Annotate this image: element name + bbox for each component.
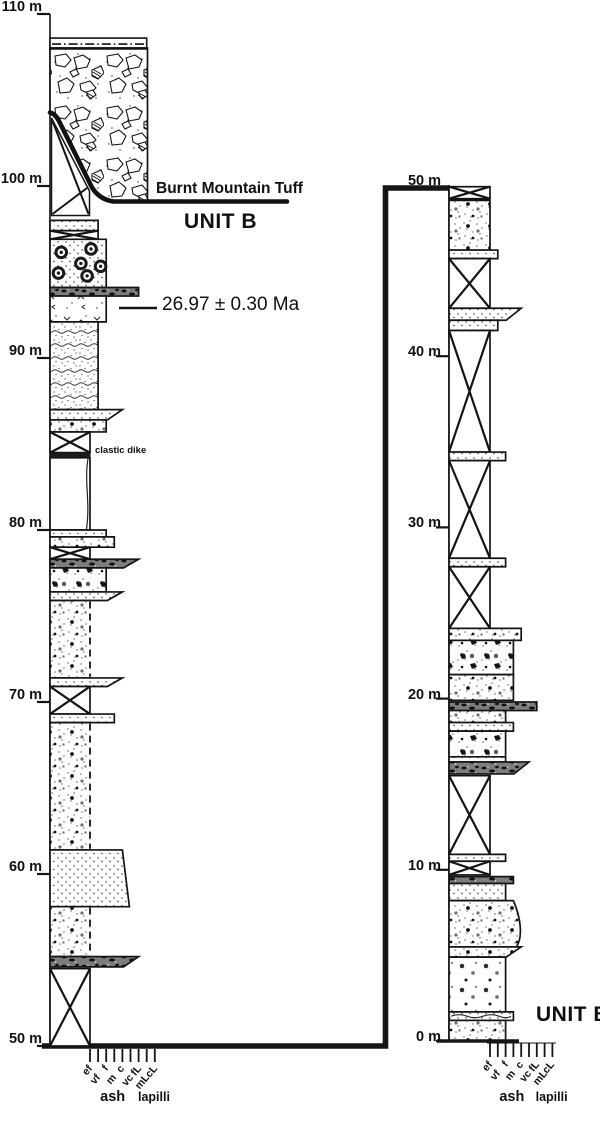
lithologic-units (50, 38, 537, 1046)
stratigraphic-section-figure: Burnt Mountain Tuff UNIT B 26.97 ± 0.30 … (0, 0, 600, 1124)
strat-columns-graphic (0, 0, 600, 1124)
